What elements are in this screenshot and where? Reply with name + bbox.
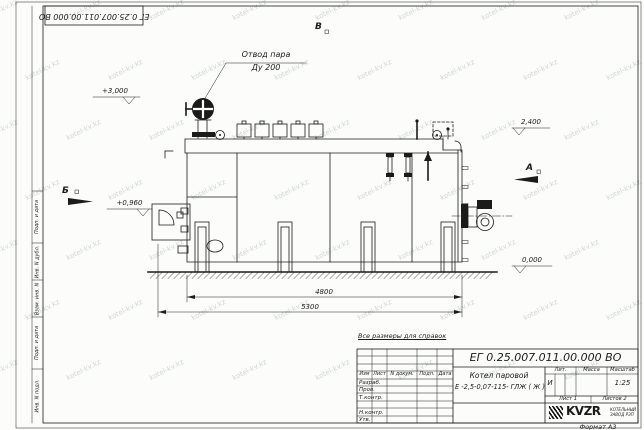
boiler-body: [165, 139, 462, 262]
manufacturer-logo-cell: KVZR КОТЕЛЬНЫЙ ЗАВОД РЭП: [545, 403, 638, 423]
stamp-cell-inv-dubl: Инв. N дубл.: [32, 243, 43, 280]
col-ndocum: N докум.: [387, 372, 417, 378]
row-tkontr: Т.контр.: [359, 395, 383, 401]
water-level-gauges: [386, 152, 432, 181]
header-lit: Лит.: [545, 368, 576, 374]
titleblock-doc-number: ЕГ 0.25.007.011.00.000 ВО: [453, 349, 638, 367]
steam-outlet-valve: [186, 98, 215, 138]
hidden-fitting: [433, 122, 453, 136]
burner-box: [152, 204, 190, 253]
kvzr-logo-icon: [549, 406, 563, 419]
stamp-cell-podp-data-2: Подп. и дата: [32, 317, 43, 369]
row-utv: Утв.: [359, 417, 371, 423]
sheets-cell: Листов 2: [591, 397, 638, 403]
leader-text-line2: Ду 200: [226, 64, 306, 73]
reference-note: Все размеры для справок: [358, 333, 446, 340]
product-name-line1: Котел паровой: [455, 372, 543, 380]
section-label-a: А: [526, 164, 533, 174]
kvzr-logo-text: KVZR: [566, 404, 601, 418]
row-razrab: Разраб.: [359, 380, 381, 386]
product-name-line2: Е -2,5-0,07-115- ГЛЖ ( Ж ): [455, 384, 543, 391]
elevation-plus-3000: +3,000: [93, 88, 137, 96]
top-fittings: [216, 119, 462, 152]
elevation-0000: 0,000: [512, 257, 552, 265]
elevation-plus-0960: +0,960: [107, 200, 152, 208]
stamp-cell-vzam-inv: Взам. инв. N: [32, 280, 43, 317]
stamp-cell-inv-podl: Инв. N подл.: [32, 369, 43, 423]
elevation-2400: 2,400: [512, 119, 550, 127]
stamp-cell-podp-data-1: Подп. и дата: [32, 191, 43, 243]
col-data: Дата: [437, 372, 453, 378]
header-masshtab: Масштаб: [607, 368, 638, 374]
row-prov: Пров.: [359, 387, 375, 393]
sheet-cell: Лист 1: [545, 397, 591, 403]
lit-value: И: [545, 380, 555, 388]
dimension-5300: 5300: [292, 304, 328, 312]
kvzr-logo-subtext: КОТЕЛЬНЫЙ ЗАВОД РЭП: [610, 407, 636, 417]
leader-text-line1: Отвод пара: [226, 51, 306, 60]
elevation-marks: [93, 97, 552, 273]
ground-line: [148, 272, 497, 279]
top-doc-stamp: ЕГ 0.25.007.011.00.000 ВО: [45, 6, 143, 25]
col-izm: Изм: [357, 372, 372, 378]
support-legs: [195, 222, 455, 272]
drawing-sheet: kotel-kv.kzkotel-kv.kzkotel-kv.kzkotel-k…: [0, 0, 644, 430]
scale-value: 1:25: [607, 380, 638, 388]
format-label: Формат А3: [560, 424, 636, 430]
section-label-v: В: [315, 23, 322, 33]
dimension-4800: 4800: [306, 289, 342, 297]
header-massa: Масса: [576, 368, 607, 374]
top-doc-stamp-text: ЕГ 0.25.007.011.00.000 ВО: [39, 11, 149, 20]
col-podp: Подп.: [417, 372, 437, 378]
section-label-b: Б: [62, 187, 69, 197]
pump-assembly: [452, 200, 512, 231]
row-nkontr: Н.контр.: [359, 410, 384, 416]
col-list: Лист: [372, 372, 387, 378]
